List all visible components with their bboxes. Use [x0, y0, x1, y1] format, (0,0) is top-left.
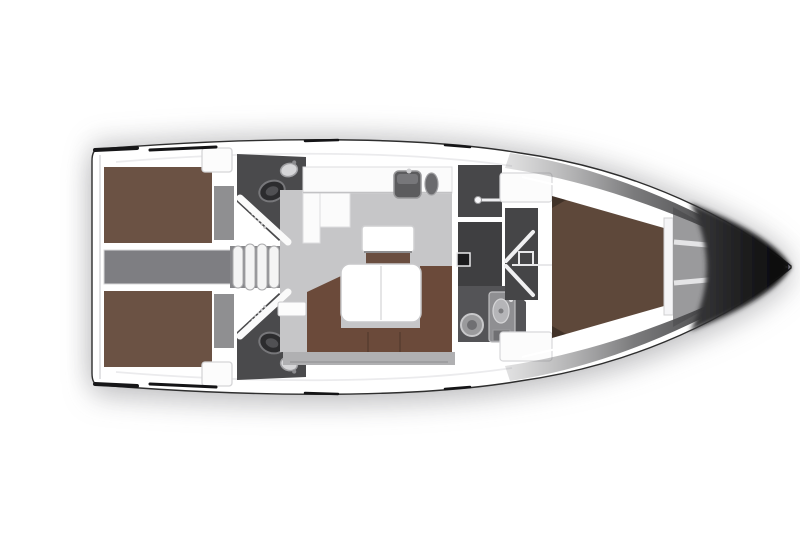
companionway-step: [257, 244, 267, 290]
transom-trim-bottom: [95, 384, 137, 386]
deck-locker-starboard: [202, 362, 232, 386]
galley-second-basin: [425, 173, 438, 195]
companionway-step: [269, 246, 279, 288]
towel-rail-knob: [475, 197, 482, 204]
salon-floor-strip: [283, 352, 455, 365]
toilet-icon: [461, 314, 483, 336]
forward-bulkhead-wall: [664, 218, 673, 315]
hull-window-slit: [305, 140, 338, 141]
washbasin-drain: [499, 309, 504, 314]
aft-berth-port: [104, 167, 212, 243]
aft-foot-locker-starboard: [214, 294, 234, 348]
aft-foot-locker-port: [214, 186, 234, 240]
floor-plan-canvas: [0, 0, 800, 533]
hull-window-slit: [305, 393, 338, 394]
transom-trim-top: [95, 148, 137, 150]
chart-table: [362, 226, 414, 252]
aft-berth-starboard: [104, 291, 212, 367]
floor-hatch-icon: [457, 253, 470, 266]
galley-sink-highlight: [397, 174, 418, 184]
galley-counter-side-low: [303, 193, 320, 243]
side-locker: [278, 302, 306, 316]
companionway-step: [245, 244, 255, 290]
engine-compartment: [104, 250, 232, 284]
yacht-floor-plan: [0, 0, 800, 533]
galley-faucet-icon: [407, 169, 412, 174]
shower-room: [458, 165, 502, 217]
deck-locker-port: [202, 148, 232, 172]
companionway-step: [233, 246, 243, 288]
boat-hull-group: [92, 140, 791, 395]
